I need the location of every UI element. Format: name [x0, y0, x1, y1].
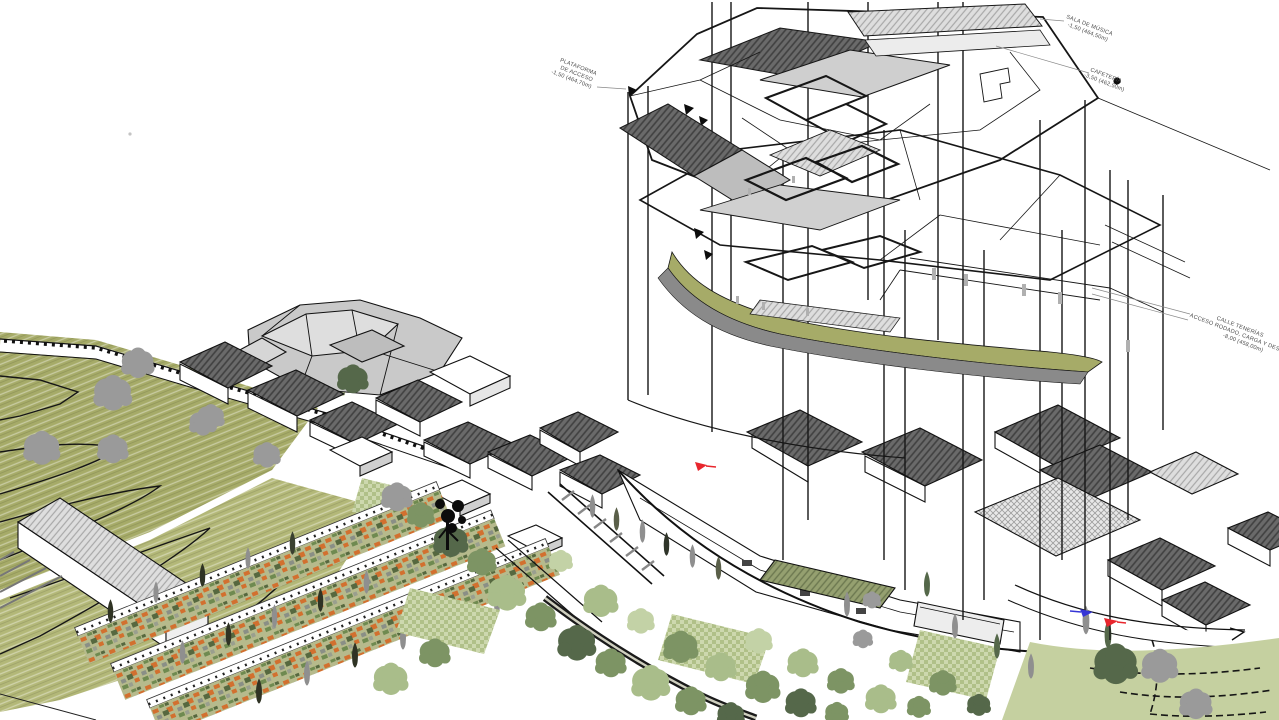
section-marker: [694, 228, 713, 260]
annotation-cafeteria: CAFETERÍA -3,50 (462,50m): [996, 46, 1128, 93]
site-axonometric-drawing: PLATAFORMA DE ACCESO -1,50 (464,70m) SAL…: [0, 0, 1279, 720]
green-slope: [1002, 606, 1279, 720]
annotation-plataforma: PLATAFORMA DE ACCESO -1,50 (464,70m): [550, 56, 637, 96]
annotation-calle-tenerias: CALLE TENERÍAS ACCESO RODADO, CARGA Y DE…: [1092, 288, 1279, 367]
floor-plate-mid: [620, 104, 1160, 280]
architectural-drawing-page: PLATAFORMA DE ACCESO -1,50 (464,70m) SAL…: [0, 0, 1279, 720]
red-arrow-upper-marker: [695, 462, 716, 471]
stray-mark: [128, 132, 131, 135]
ground-town: [618, 405, 1279, 652]
